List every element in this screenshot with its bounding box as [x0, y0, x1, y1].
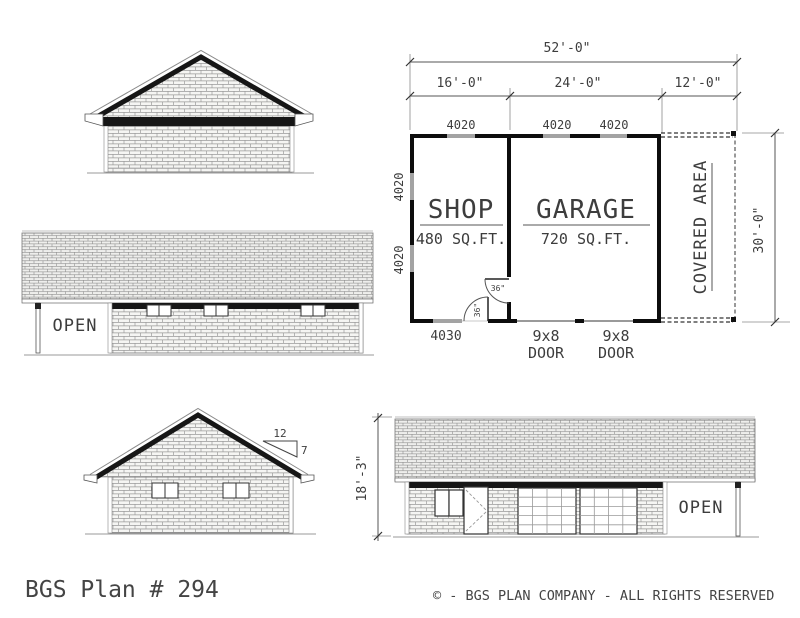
covered-area-label: COVERED AREA — [691, 160, 711, 295]
open-area-label: OPEN — [53, 316, 98, 336]
window-pair-2 — [223, 483, 249, 498]
elevation-rear-gable-end — [85, 51, 314, 174]
door-swing-label: 36" — [473, 303, 482, 317]
entry-door — [464, 487, 488, 534]
fascia-band — [395, 478, 755, 482]
pitch-rise-label: 7 — [301, 444, 308, 457]
covered-area: COVERED AREA — [661, 131, 736, 322]
garage-door-1 — [518, 488, 576, 534]
corner-trim-left — [108, 303, 112, 353]
garage-name: GARAGE — [536, 195, 636, 225]
floor-plan: 52'-0" 16'-0" 24'-0" 12'-0" 30'-0" 4020 … — [392, 41, 790, 362]
post-cap — [735, 482, 741, 488]
roof-pitch-symbol: 12 7 — [263, 427, 308, 457]
plan-windows — [412, 136, 627, 321]
corner-trim-right — [290, 126, 294, 172]
eave-tip-left — [84, 475, 97, 483]
roof-shingles — [22, 233, 373, 299]
window-label-4030: 4030 — [430, 329, 461, 344]
corner-trim-left — [405, 482, 409, 534]
footer: BGS Plan # 294 © - BGS PLAN COMPANY - AL… — [25, 577, 774, 604]
gable-shingles — [97, 415, 301, 477]
window-label-4020-top-3: 4020 — [600, 118, 629, 132]
dim-depth: 30'-0" — [752, 207, 767, 254]
covered-area-label-group: COVERED AREA — [691, 160, 712, 295]
post-cap — [35, 303, 41, 309]
elevation-rear-side: OPEN — [22, 231, 374, 355]
shop-name: SHOP — [428, 195, 495, 225]
blueprint-sheet: OPEN — [0, 0, 800, 618]
fascia-band — [22, 299, 373, 303]
window-label-4020-top-1: 4020 — [447, 118, 476, 132]
eave-tip-left — [85, 114, 103, 126]
dim-overall: 52'-0" — [544, 41, 591, 56]
garage-door-label-2: 9x8 DOOR — [598, 327, 635, 362]
shop-area: 480 SQ.FT. — [416, 230, 506, 248]
garage-door-label-1: 9x8 DOOR — [528, 327, 565, 362]
porch-post — [736, 482, 740, 536]
roof-shingles — [395, 419, 755, 481]
corner-trim-right — [663, 482, 667, 534]
plan-walls — [410, 134, 661, 323]
plan-title: BGS Plan # 294 — [25, 577, 219, 603]
porch-post — [36, 303, 40, 353]
height-dimension: 18'-3" — [355, 413, 392, 541]
frieze-band — [407, 482, 665, 488]
window-pair-3 — [301, 305, 325, 316]
extension-lines — [410, 54, 790, 322]
window-pair-1 — [147, 305, 171, 316]
corner-trim-right — [289, 477, 293, 533]
open-area-label: OPEN — [679, 498, 724, 518]
window-label-4020-left-1: 4020 — [392, 173, 406, 202]
window-pair-2 — [204, 305, 228, 316]
dim-covered-width: 12'-0" — [675, 76, 722, 91]
garage-door-word: DOOR — [528, 344, 565, 362]
door-swing-label: 36" — [491, 284, 505, 293]
height-dim-label: 18'-3" — [355, 455, 370, 502]
garage-door-word: DOOR — [598, 344, 635, 362]
corner-trim-right — [359, 303, 363, 353]
corner-post-bottom — [731, 317, 736, 322]
window-pair — [435, 490, 463, 516]
corner-trim-left — [108, 477, 112, 533]
frieze-band — [103, 117, 295, 126]
garage-door-size: 9x8 — [532, 327, 559, 345]
corner-post-top — [731, 131, 736, 136]
gable-shingles — [97, 57, 305, 117]
elevation-side-gable-end: 12 7 — [84, 409, 316, 535]
pitch-run-label: 12 — [273, 427, 286, 440]
garage-door-size: 9x8 — [602, 327, 629, 345]
eave-tip-right — [301, 475, 314, 483]
dimension-lines — [410, 62, 775, 322]
eave-tip-right — [295, 114, 313, 126]
elevation-front: OPEN 18'-3" — [355, 413, 759, 541]
window-label-4020-top-2: 4020 — [543, 118, 572, 132]
dimension-ticks — [406, 58, 779, 326]
dim-shop-width: 16'-0" — [437, 76, 484, 91]
window-pair-1 — [152, 483, 178, 498]
dim-garage-width: 24'-0" — [555, 76, 602, 91]
garage-area: 720 SQ.FT. — [541, 230, 631, 248]
shingle-wall — [106, 126, 292, 172]
blueprint-drawing: OPEN — [0, 0, 800, 618]
corner-trim-left — [104, 126, 108, 172]
shop-entry-door: 36" — [464, 297, 488, 321]
window-label-4020-left-2: 4020 — [392, 246, 406, 275]
extension-lines — [372, 417, 392, 536]
shingle-wall — [110, 477, 293, 533]
plan-dimensions: 52'-0" 16'-0" 24'-0" 12'-0" 30'-0" — [406, 41, 790, 326]
garage-door-2 — [580, 488, 637, 534]
shop-room-label: SHOP 480 SQ.FT. — [416, 195, 506, 248]
garage-room-label: GARAGE 720 SQ.FT. — [523, 195, 650, 248]
copyright-notice: © - BGS PLAN COMPANY - ALL RIGHTS RESERV… — [433, 588, 774, 604]
